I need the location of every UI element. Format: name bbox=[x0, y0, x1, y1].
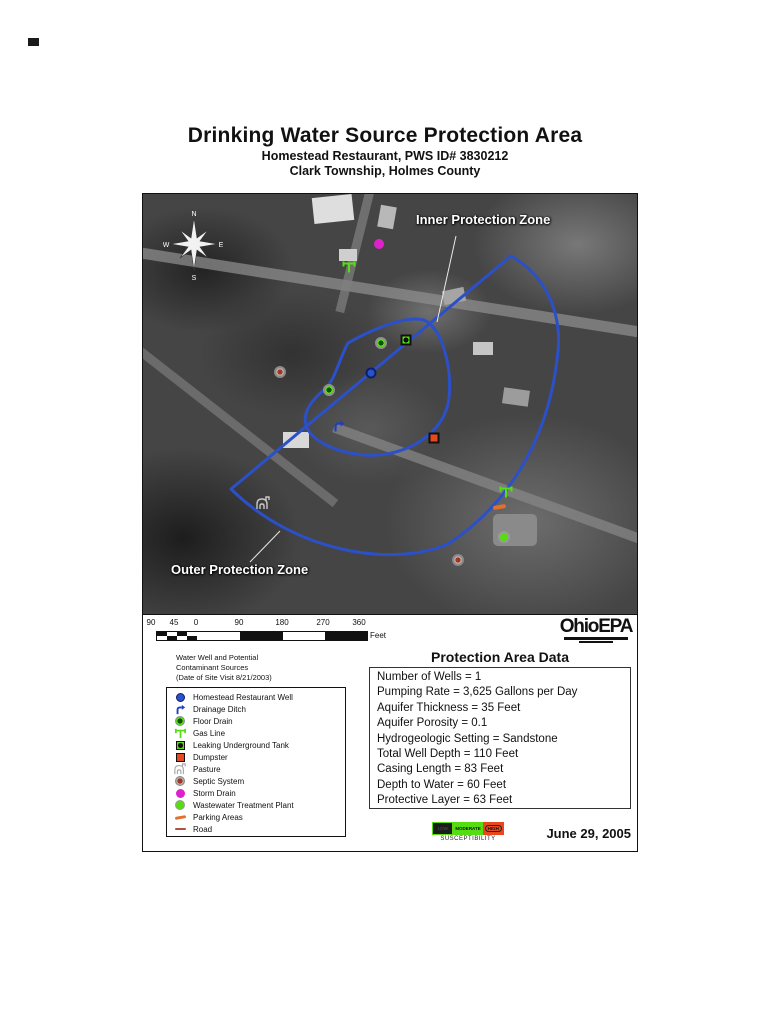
wastewater-treatment-plant-icon bbox=[167, 800, 193, 810]
ohio-epa-logo: OhioEPA bbox=[557, 618, 635, 643]
logo-subtext-bar bbox=[579, 641, 613, 643]
susceptibility-moderate-segment: MODERATE bbox=[453, 822, 482, 835]
well-icon bbox=[167, 693, 193, 702]
page-title: Drinking Water Source Protection Area bbox=[0, 124, 770, 148]
aerial-photo-map: Inner Protection Zone Outer Protection Z… bbox=[143, 194, 637, 615]
legend-item: Septic System bbox=[167, 775, 345, 787]
scale-tick: 45 bbox=[170, 618, 179, 627]
scale-segment bbox=[325, 632, 367, 640]
compass-north: N bbox=[191, 211, 196, 218]
susceptibility-high-segment: HIGH bbox=[483, 822, 504, 835]
gas-line-marker bbox=[342, 261, 357, 274]
data-line: Number of Wells = 1 bbox=[377, 670, 630, 685]
drainage-ditch-icon bbox=[167, 704, 193, 715]
data-line: Depth to Water = 60 Feet bbox=[377, 778, 630, 793]
legend-item: Leaking Underground Tank bbox=[167, 739, 345, 751]
scale-tick: 270 bbox=[316, 618, 329, 627]
logo-epa-text: EPA bbox=[598, 616, 632, 637]
scan-artifact-mark bbox=[28, 38, 39, 46]
dumpster-marker bbox=[429, 433, 440, 444]
legend-header: Water Well and Potential Contaminant Sou… bbox=[176, 653, 272, 683]
legend-item-label: Floor Drain bbox=[193, 717, 233, 726]
scale-tick: 180 bbox=[275, 618, 288, 627]
leaking-underground-tank-icon bbox=[167, 741, 193, 750]
data-line: Total Well Depth = 110 Feet bbox=[377, 747, 630, 762]
legend-item: Homestead Restaurant Well bbox=[167, 691, 345, 703]
susceptibility-label: SUSCEPTIBILITY bbox=[423, 836, 513, 842]
scale-tick: 90 bbox=[147, 618, 156, 627]
legend-item: Storm Drain bbox=[167, 787, 345, 799]
inner-zone-label: Inner Protection Zone bbox=[416, 212, 550, 227]
floor-drain-icon bbox=[167, 716, 193, 726]
legend-item-label: Septic System bbox=[193, 777, 244, 786]
septic-system-marker bbox=[452, 554, 464, 566]
subtitle-location: Clark Township, Holmes County bbox=[0, 164, 770, 178]
legend-item-label: Dumpster bbox=[193, 753, 228, 762]
legend-item-label: Wastewater Treatment Plant bbox=[193, 801, 294, 810]
subtitle-pws: Homestead Restaurant, PWS ID# 3830212 bbox=[0, 149, 770, 163]
susceptibility-bar: LOW MODERATE HIGH bbox=[432, 822, 504, 835]
legend-item-label: Storm Drain bbox=[193, 789, 236, 798]
data-box-title: Protection Area Data bbox=[369, 649, 631, 665]
outer-protection-zone-boundary bbox=[231, 256, 559, 555]
outer-zone-label: Outer Protection Zone bbox=[171, 562, 308, 577]
floor-drain-marker bbox=[323, 384, 335, 396]
data-line: Pumping Rate = 3,625 Gallons per Day bbox=[377, 685, 630, 700]
septic-system-icon bbox=[167, 776, 193, 786]
data-line: Aquifer Porosity = 0.1 bbox=[377, 716, 630, 731]
scale-tick: 90 bbox=[235, 618, 244, 627]
road-icon bbox=[167, 828, 193, 831]
map-date: June 29, 2005 bbox=[513, 826, 631, 841]
scale-bar-segments bbox=[156, 631, 368, 641]
legend-item: Wastewater Treatment Plant bbox=[167, 799, 345, 811]
data-line: Protective Layer = 63 Feet bbox=[377, 793, 630, 808]
compass-rose: N S W E bbox=[163, 208, 225, 282]
scale-bar: 90 45 0 90 180 270 360 Feet bbox=[149, 618, 389, 644]
parking-areas-icon bbox=[167, 816, 193, 819]
dumpster-icon bbox=[167, 753, 193, 762]
legend-item: Road bbox=[167, 823, 345, 835]
gas-line-icon bbox=[167, 728, 193, 739]
compass-east: E bbox=[219, 242, 224, 249]
scale-unit-label: Feet bbox=[370, 631, 386, 640]
legend-item-label: Parking Areas bbox=[193, 813, 243, 822]
protection-area-data-box: Number of Wells = 1 Pumping Rate = 3,625… bbox=[369, 667, 631, 809]
pasture-icon bbox=[167, 763, 193, 775]
pasture-marker bbox=[255, 496, 271, 510]
map-figure-frame: Inner Protection Zone Outer Protection Z… bbox=[142, 193, 638, 852]
susceptibility-low-segment: LOW bbox=[432, 822, 453, 835]
ohio-epa-wordmark: OhioEPA bbox=[557, 618, 635, 636]
title-block: Drinking Water Source Protection Area Ho… bbox=[0, 124, 770, 178]
scale-segment bbox=[197, 632, 240, 640]
legend-item: Parking Areas bbox=[167, 811, 345, 823]
legend-header-line: Contaminant Sources bbox=[176, 663, 272, 673]
scale-segment bbox=[283, 632, 325, 640]
susceptibility-high-label: HIGH bbox=[485, 825, 502, 832]
septic-system-marker bbox=[274, 366, 286, 378]
logo-subtext-bar bbox=[564, 637, 628, 640]
legend-item: Dumpster bbox=[167, 751, 345, 763]
wastewater-treatment-plant-marker bbox=[498, 531, 510, 543]
compass-star bbox=[171, 218, 217, 270]
susceptibility-indicator: LOW MODERATE HIGH SUSCEPTIBILITY bbox=[423, 822, 513, 842]
scale-tick: 0 bbox=[194, 618, 198, 627]
storm-drain-icon bbox=[167, 789, 193, 798]
legend-item-label: Pasture bbox=[193, 765, 221, 774]
compass-west: W bbox=[163, 242, 170, 249]
legend-item: Pasture bbox=[167, 763, 345, 775]
legend-header-line: Water Well and Potential bbox=[176, 653, 272, 663]
floor-drain-marker bbox=[375, 337, 387, 349]
compass-south: S bbox=[192, 275, 197, 282]
storm-drain-marker bbox=[374, 239, 384, 249]
well-marker bbox=[366, 368, 377, 379]
legend-item-label: Drainage Ditch bbox=[193, 705, 246, 714]
drainage-ditch-marker bbox=[333, 420, 346, 433]
legend-item-label: Gas Line bbox=[193, 729, 225, 738]
legend-item: Drainage Ditch bbox=[167, 703, 345, 715]
outer-zone-leader-line bbox=[250, 531, 280, 562]
legend-item: Floor Drain bbox=[167, 715, 345, 727]
data-line: Casing Length = 83 Feet bbox=[377, 762, 630, 777]
legend-item-label: Leaking Underground Tank bbox=[193, 741, 289, 750]
legend-header-line: (Date of Site Visit 8/21/2003) bbox=[176, 673, 272, 683]
gas-line-marker bbox=[499, 486, 514, 499]
scale-checker bbox=[157, 632, 197, 640]
leaking-underground-tank-marker bbox=[401, 335, 412, 346]
legend-item: Gas Line bbox=[167, 727, 345, 739]
legend-item-label: Road bbox=[193, 825, 212, 834]
data-line: Aquifer Thickness = 35 Feet bbox=[377, 701, 630, 716]
logo-ohio-text: Ohio bbox=[560, 616, 598, 637]
legend-item-label: Homestead Restaurant Well bbox=[193, 693, 293, 702]
legend-box: Homestead Restaurant Well Drainage Ditch… bbox=[166, 687, 346, 837]
scale-segment bbox=[240, 632, 283, 640]
scale-tick: 360 bbox=[352, 618, 365, 627]
data-line: Hydrogeologic Setting = Sandstone bbox=[377, 732, 630, 747]
